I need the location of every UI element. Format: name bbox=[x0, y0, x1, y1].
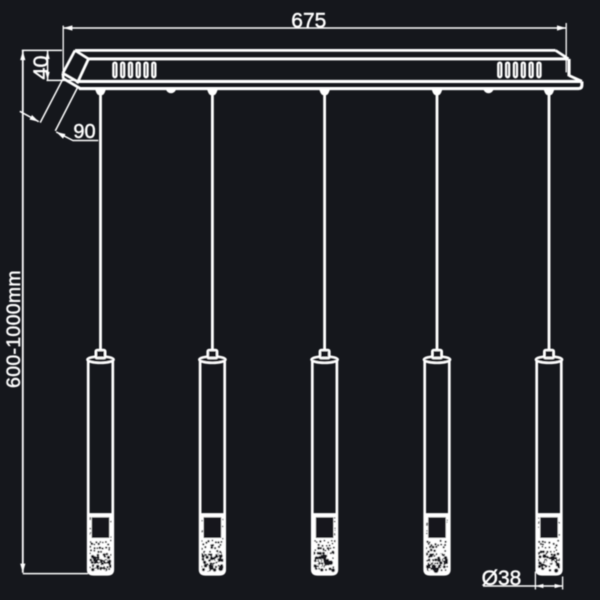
svg-text:40: 40 bbox=[29, 56, 53, 80]
svg-text:90: 90 bbox=[73, 121, 95, 143]
svg-text:675: 675 bbox=[291, 9, 326, 32]
svg-text:Ø38: Ø38 bbox=[482, 567, 522, 590]
svg-text:600-1000mm: 600-1000mm bbox=[3, 270, 25, 388]
